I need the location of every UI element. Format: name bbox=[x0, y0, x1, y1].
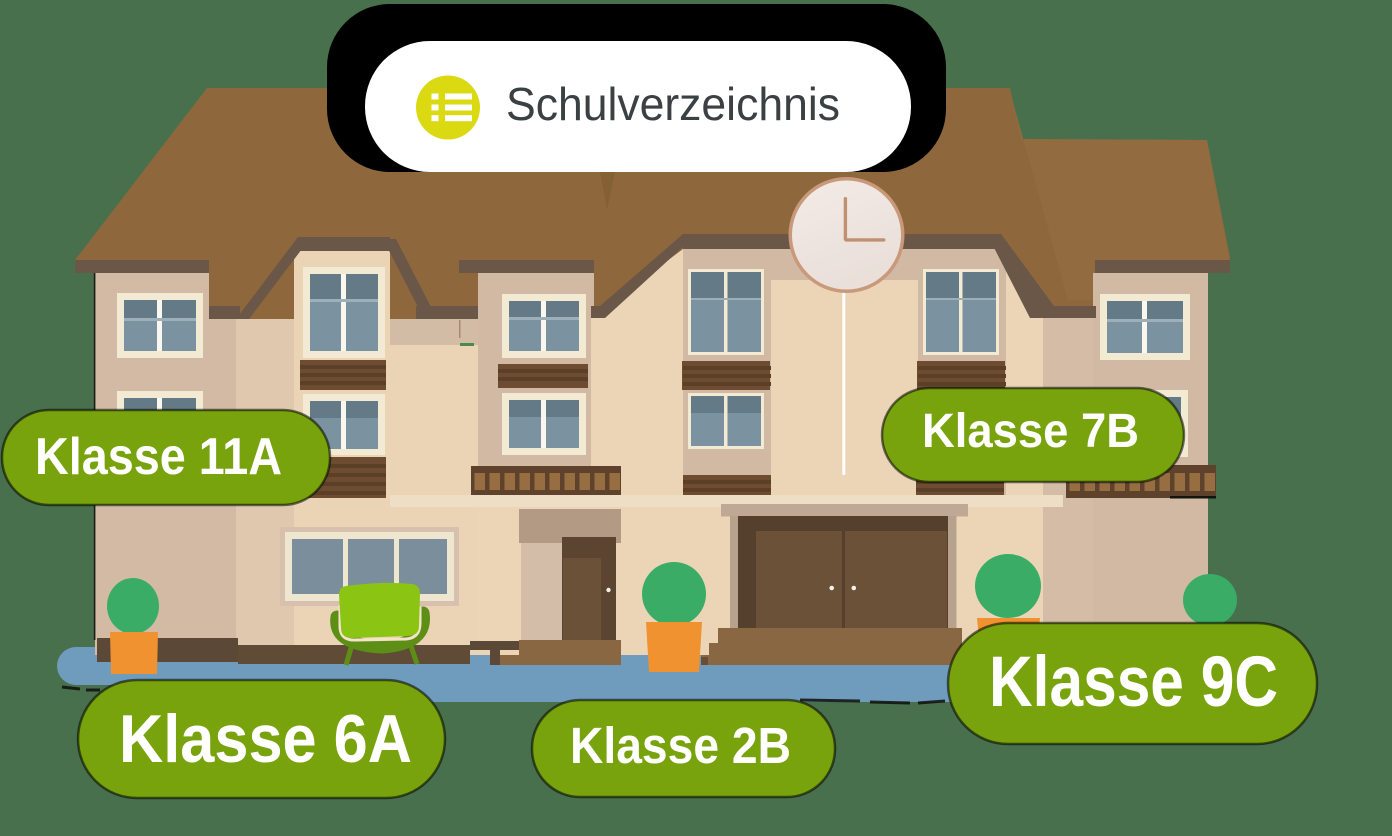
svg-text:Klasse 7B: Klasse 7B bbox=[922, 405, 1139, 458]
svg-text:Klasse 6A: Klasse 6A bbox=[119, 701, 412, 777]
svg-text:Klasse 2B: Klasse 2B bbox=[570, 717, 791, 774]
svg-text:Schulverzeichnis: Schulverzeichnis bbox=[506, 78, 840, 130]
svg-text:Klasse 11A: Klasse 11A bbox=[35, 428, 282, 486]
svg-text:Klasse 9C: Klasse 9C bbox=[989, 643, 1278, 722]
